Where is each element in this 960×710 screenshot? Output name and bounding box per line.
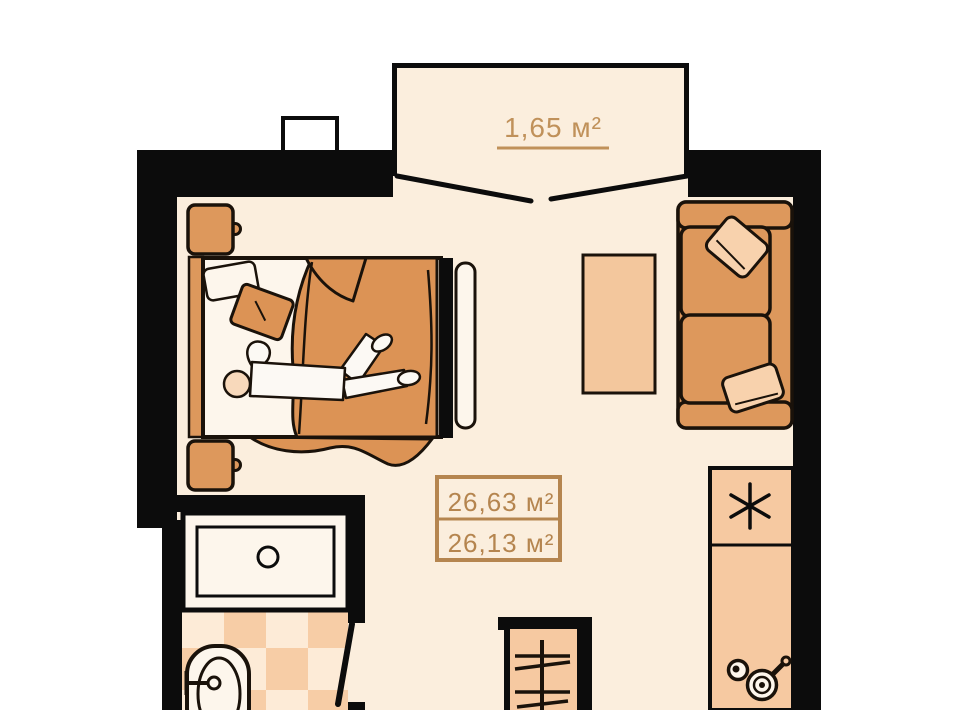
wall-left-lower (162, 520, 182, 710)
person-torso (250, 362, 345, 400)
wall-right (793, 150, 821, 710)
shower-tray (183, 513, 348, 610)
wall-wardrobe-top (498, 617, 592, 629)
balcony-area-text: 1,65 м² (504, 112, 602, 143)
nightstand-top (188, 205, 233, 254)
bed (203, 258, 475, 465)
balcony-area-label: 1,65 м² (497, 112, 609, 148)
vent-shaft-box (283, 118, 337, 152)
area-label-box: 26,63 м² 26,13 м² (437, 477, 560, 560)
wall-left-upper (137, 150, 177, 528)
living-area-text: 26,13 м² (448, 528, 555, 558)
headboard (189, 257, 203, 437)
person-head (224, 371, 250, 397)
sofa (678, 202, 792, 428)
floor-plan-drawing: 1,65 м² 26,63 м² 26,13 м² (0, 0, 960, 710)
wall-bathroom-top (137, 495, 365, 512)
wall-wardrobe-right (577, 629, 592, 710)
kitchen (710, 468, 793, 710)
wall-wardrobe-left-thin (504, 629, 510, 710)
tv-stand (440, 258, 453, 438)
sink (186, 646, 249, 710)
shower-drain-icon (258, 547, 278, 567)
total-area-text: 26,63 м² (448, 487, 555, 517)
tv-screen (456, 263, 475, 428)
bathroom (182, 512, 352, 710)
nightstand-bottom (188, 441, 233, 490)
table (583, 255, 655, 393)
floor-plan: 1,65 м² 26,63 м² 26,13 м² (0, 0, 960, 710)
wardrobe (510, 629, 577, 710)
wall-bathroom-right (348, 512, 365, 623)
wall-wardrobe-nub (498, 617, 512, 630)
